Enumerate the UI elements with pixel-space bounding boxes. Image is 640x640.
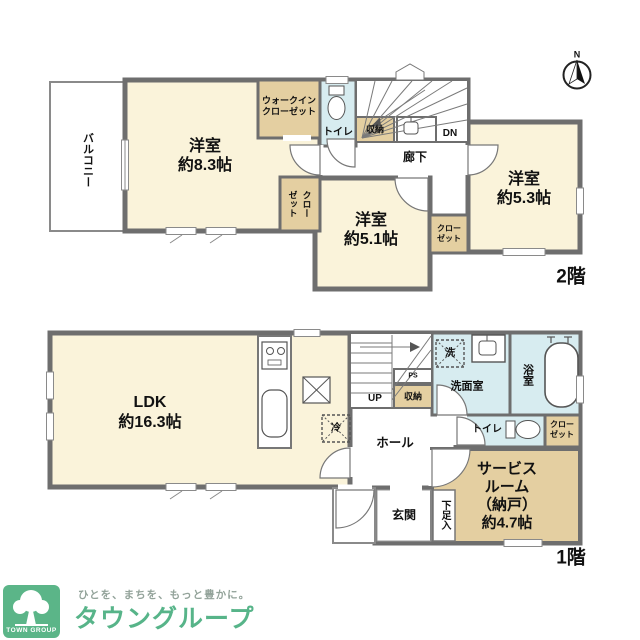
stairs-up-label: UP [368,394,382,404]
floorplan-page: バルコニー 洋室 約8.3帖 ウォークイン クローゼット トイレ 収納 DN 廊… [0,0,640,640]
closet-left-2f-col1: クロー [301,191,314,218]
closet-1f-line2: ゼット [550,431,574,439]
stairs-dn-label: DN [443,129,457,139]
bedroom-5-1-size: 約5.1帖 [344,232,398,248]
logo-brand: タウングループ [74,599,255,635]
floor2-plan [50,64,584,289]
service-room-line2: ルーム [485,480,530,495]
kitchen-sink-icon [262,390,287,437]
compass-n-label: N [574,51,581,60]
balcony-label: バルコニー [82,133,93,188]
bedroom-8-3-name: 洋室 [189,139,221,155]
bedroom-5-3-size: 約5.3帖 [497,191,551,207]
closet-mid-line1: クロー [437,225,461,233]
toilet-icon-2f [328,86,345,120]
compass-icon [564,60,591,89]
closet-mid-line2: ゼット [437,235,461,243]
laundry-label: 洗 [445,349,455,359]
toilet-2f-label: トイレ [323,128,353,138]
tree-icon [3,587,60,627]
bathroom-label: 浴室 [522,364,533,386]
ldk-size: 約16.3帖 [118,415,181,431]
bedroom-5-3-name: 洋室 [508,172,540,188]
closet-left-2f-col2: ゼット [287,191,300,218]
wic-label-line1: ウォークイン [262,97,316,106]
bedroom-8-3-size: 約8.3帖 [178,158,232,174]
service-room-line3: （納戸） [477,498,537,513]
shoe-box-label: 下足入 [439,500,449,530]
storage-2f-label: 収納 [366,126,384,135]
toilet-1f-label: トイレ [472,425,502,435]
basin-icon-1f [472,335,505,362]
floor-hatch-icon [303,377,330,403]
service-room-line1: サービス [477,462,537,477]
bathtub-icon [545,337,578,407]
floor2-label: 2階 [556,268,586,287]
room-ldk [50,333,350,487]
pipe-space-label: PS [408,373,417,380]
storage-1f-label: 収納 [404,393,422,402]
washroom-label: 洗面室 [451,382,484,393]
floorplan-drawing [0,0,640,640]
ldk-name: LDK [134,395,167,411]
kitchen-counter [258,336,291,448]
fridge-label: 冷 [331,424,341,434]
town-group-logo: TOWN GROUP ひとを、まちを、もっと豊かに。 タウングループ [0,580,300,640]
hallway-label: 廊下 [403,151,427,163]
bedroom-5-1-name: 洋室 [355,213,387,229]
logo-mark: TOWN GROUP [3,585,60,638]
hall-label: ホール [376,437,414,450]
toilet-icon-1f [506,421,540,439]
logo-mark-text: TOWN GROUP [3,627,60,634]
closet-left-2f-label: クロー ゼット [287,191,314,218]
floor1-label: 1階 [556,549,586,568]
wic-label-line2: クローゼット [262,108,316,117]
entrance-label: 玄関 [392,509,416,521]
closet-1f-line1: クロー [550,421,574,429]
service-room-line4: 約4.7帖 [482,516,533,531]
